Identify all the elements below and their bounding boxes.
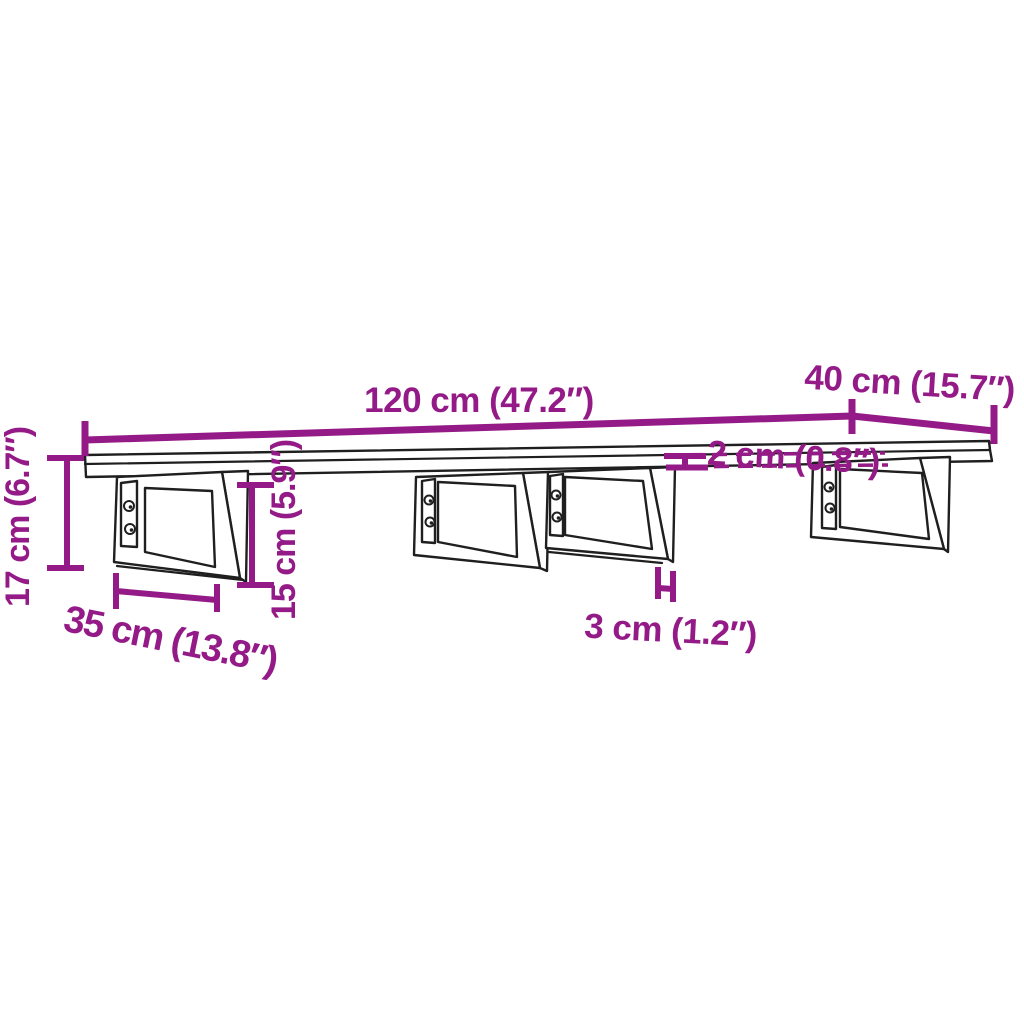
dimension-label-bracket-height: 15 cm (5.9″): [265, 440, 303, 620]
screw-icon: [826, 504, 835, 513]
wall-bracket-mid-left: [414, 472, 549, 571]
screw-dot-icon: [430, 521, 433, 524]
bracket-wall-plate: [121, 481, 137, 547]
product-dimension-diagram: 120 cm (47.2″) 40 cm (15.7″) 2 cm (0.8″)…: [0, 0, 1024, 1024]
diagram-canvas: 120 cm (47.2″) 40 cm (15.7″) 2 cm (0.8″)…: [0, 0, 1024, 1024]
screw-icon: [125, 524, 135, 534]
screw-dot-icon: [830, 507, 833, 510]
screw-dot-icon: [129, 505, 133, 509]
screw-icon: [825, 483, 834, 492]
screw-icon: [124, 501, 134, 511]
screw-dot-icon: [557, 516, 560, 519]
screw-icon: [426, 518, 435, 527]
shelf-board-right-end-edge: [989, 441, 990, 450]
screw-dot-icon: [556, 494, 559, 497]
screw-icon: [552, 491, 561, 500]
screw-dot-icon: [829, 486, 832, 489]
bracket-frame-inner: [145, 488, 215, 567]
screw-dot-icon: [429, 499, 432, 502]
bracket-wall-plate: [550, 474, 563, 536]
screw-icon: [425, 496, 434, 505]
bracket-wall-plate: [422, 479, 435, 543]
screw-icon: [553, 513, 562, 522]
dimension-line: [658, 588, 673, 589]
dimension-label-total-height: 17 cm (6.7″): [0, 427, 37, 607]
screw-dot-icon: [130, 528, 134, 532]
dimension-label-shelf-width: 120 cm (47.2″): [364, 381, 594, 420]
wall-bracket-mid-right: [546, 467, 675, 563]
bracket-frame-inner: [565, 477, 652, 549]
wall-bracket-left: [114, 471, 248, 582]
